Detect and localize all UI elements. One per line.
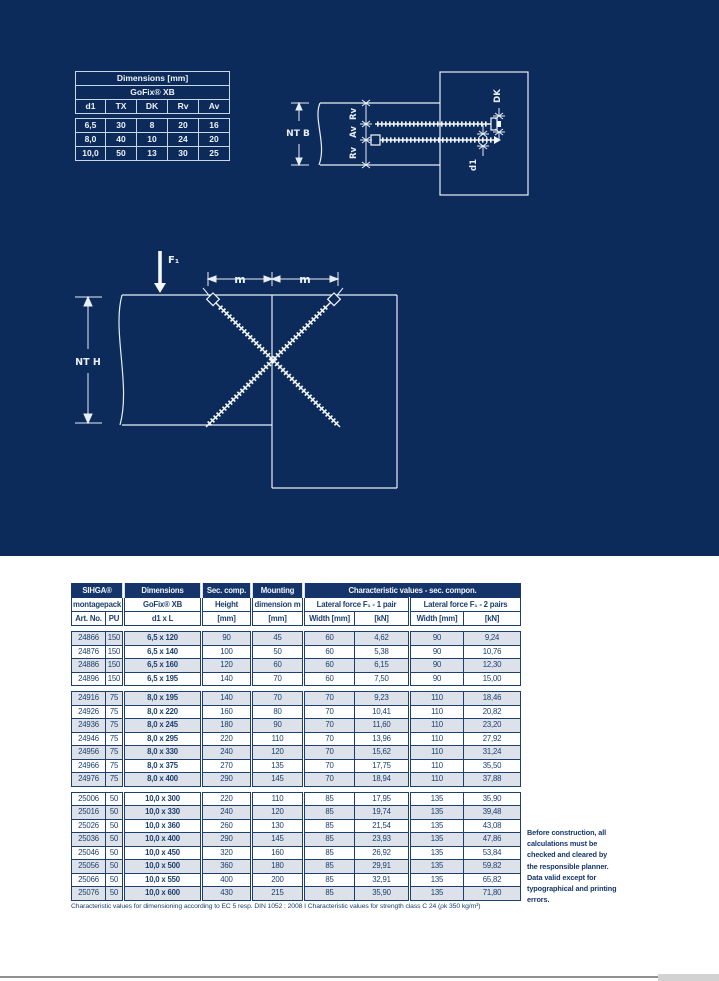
table-row: 248761506,5 x 14010050605,389010,76 [72,645,521,659]
cell: 53,84 [464,846,521,860]
table-row: 24926758,0 x 220160807010,4111020,82 [72,705,521,719]
table-row: 248961506,5 x 19514070607,509015,00 [72,672,521,686]
cell: 50 [106,887,124,901]
cell: 160 [252,846,304,860]
mini-col-header: TX [106,100,137,114]
cell: 400 [202,873,252,887]
table-row: 24936758,0 x 245180907011,6011023,20 [72,719,521,733]
mini-table-row: 6,53082016 [76,119,230,133]
cell: 150 [106,645,124,659]
table-row: 250165010,0 x 3302401208519,7413539,48 [72,806,521,820]
cell: 240 [202,746,252,760]
cell: 75 [106,759,124,773]
header-height: Height [202,598,252,612]
header-sec-comp: Sec. comp. [202,584,252,598]
cell: 90 [410,645,464,659]
mini-cell: 24 [168,133,199,147]
m-right-label: m [299,273,310,286]
header-kn-1pair: [kN] [355,612,410,626]
f1-arrow [154,251,166,293]
cell: 60 [304,672,355,686]
cell: 7,50 [355,672,410,686]
cell: 70 [304,732,355,746]
rv-top-label: Rv [349,108,359,121]
cell: 25066 [72,873,106,887]
header-lateral-1pair: Lateral force F₁ - 1 pair [304,598,410,612]
cell: 150 [106,659,124,673]
cell: 6,15 [355,659,410,673]
mini-table-subtitle: GoFix® XB [76,86,230,100]
cell: 25026 [72,819,106,833]
mini-cell: 13 [137,147,168,161]
cell: 140 [202,692,252,706]
cell: 90 [410,672,464,686]
cell: 135 [410,806,464,820]
mini-col-header: DK [137,100,168,114]
cell: 35,90 [464,792,521,806]
cell: 50 [106,873,124,887]
table-row: 24976758,0 x 4002901457018,9411037,88 [72,773,521,787]
cell: 65,82 [464,873,521,887]
cell: 110 [410,773,464,787]
cell: 59,82 [464,860,521,874]
cell: 25006 [72,792,106,806]
cell: 50 [106,860,124,874]
cell: 100 [202,645,252,659]
screw-head [491,118,497,130]
mini-cell: 8,0 [76,133,106,147]
cell: 200 [252,873,304,887]
cell: 90 [252,719,304,733]
mini-cell: 20 [168,119,199,133]
cell: 85 [304,806,355,820]
cell: 85 [304,846,355,860]
cell: 24966 [72,759,106,773]
cell: 31,24 [464,746,521,760]
cell: 13,96 [355,732,410,746]
cell: 120 [252,746,304,760]
cell: 70 [304,746,355,760]
table-row: 248661506,5 x 1209045604,62909,24 [72,632,521,646]
cell: 37,88 [464,773,521,787]
cell: 90 [410,632,464,646]
cell: 75 [106,746,124,760]
screw-head [371,135,380,145]
cell: 80 [252,705,304,719]
cell: 215 [252,887,304,901]
cell: 85 [304,887,355,901]
cell: 26,92 [355,846,410,860]
mini-table-row: 10,050133025 [76,147,230,161]
cell: 240 [202,806,252,820]
cell: 180 [202,719,252,733]
cell: 120 [252,806,304,820]
cell: 110 [410,692,464,706]
cell: 43,08 [464,819,521,833]
cell: 270 [202,759,252,773]
mini-cell: 6,5 [76,119,106,133]
cell: 35,50 [464,759,521,773]
mini-col-header: Av [199,100,230,114]
cell: 75 [106,773,124,787]
cell: 6,5 x 160 [124,659,202,673]
cell: 6,5 x 120 [124,632,202,646]
cell: 10,0 x 400 [124,833,202,847]
main-table-body: 248661506,5 x 1209045604,62909,242487615… [72,626,521,901]
table-row: 24946758,0 x 2952201107013,9611027,92 [72,732,521,746]
cell: 24956 [72,746,106,760]
cell: 145 [252,833,304,847]
cell: 85 [304,819,355,833]
cell: 85 [304,792,355,806]
mini-cell: 10 [137,133,168,147]
cell: 75 [106,692,124,706]
cell: 260 [202,819,252,833]
cell: 110 [252,792,304,806]
cell: 8,0 x 400 [124,773,202,787]
cell: 150 [106,632,124,646]
mini-table-columns: d1TXDKRvAv [76,100,230,114]
header-d1xl: d1 x L [124,612,202,626]
screw-tip [494,136,501,144]
header-montagepack: montagepack [72,598,124,612]
cell: 60 [304,632,355,646]
header-dimensions: Dimensions [124,584,202,598]
header-char-values: Characteristic values - sec. compon. [304,584,521,598]
cell: 10,0 x 360 [124,819,202,833]
cell: 24976 [72,773,106,787]
cell: 24886 [72,659,106,673]
header-width-2pairs: Width [mm] [410,612,464,626]
table-row: 250765010,0 x 6004302158535,9013571,80 [72,887,521,901]
cell: 110 [410,719,464,733]
f1-label: F₁ [168,255,179,266]
cell: 220 [202,732,252,746]
cell: 71,80 [464,887,521,901]
cell: 110 [252,732,304,746]
cell: 11,60 [355,719,410,733]
cell: 135 [410,887,464,901]
cell: 135 [410,873,464,887]
cell: 20,82 [464,705,521,719]
cell: 10,41 [355,705,410,719]
cell: 24926 [72,705,106,719]
cell: 50 [106,792,124,806]
cell: 24866 [72,632,106,646]
cell: 25046 [72,846,106,860]
mini-col-header: d1 [76,100,106,114]
cell: 8,0 x 295 [124,732,202,746]
cell: 8,0 x 330 [124,746,202,760]
cell: 50 [106,833,124,847]
mini-cell: 20 [199,133,230,147]
cell: 50 [106,806,124,820]
cell: 320 [202,846,252,860]
table-row: 250565010,0 x 5003601808529,9113559,82 [72,860,521,874]
beam-break-line [318,103,322,165]
cell: 160 [202,705,252,719]
cell: 25056 [72,860,106,874]
cell: 85 [304,860,355,874]
cell: 50 [252,645,304,659]
cell: 50 [106,846,124,860]
mini-cell: 25 [199,147,230,161]
cell: 12,30 [464,659,521,673]
cell: 50 [106,819,124,833]
header-mounting: Mounting [252,584,304,598]
table-row: 24916758,0 x 19514070709,2311018,46 [72,692,521,706]
page-bottom-border-edge [658,974,719,981]
cell: 39,48 [464,806,521,820]
cell: 17,75 [355,759,410,773]
header-width-1pair: Width [mm] [304,612,355,626]
nth-label: NT H [75,357,101,368]
cell: 135 [410,846,464,860]
cell: 145 [252,773,304,787]
mini-cell: 16 [199,119,230,133]
load-diagram: F₁ m m [62,243,442,495]
cell: 85 [304,833,355,847]
cell: 70 [252,672,304,686]
cell: 135 [410,833,464,847]
av-label: Av [349,126,359,138]
cell: 10,0 x 300 [124,792,202,806]
dimensions-mini-table: Dimensions [mm] GoFix® XB d1TXDKRvAv 6,5… [75,71,230,161]
cell: 110 [410,759,464,773]
cell: 35,90 [355,887,410,901]
cell: 360 [202,860,252,874]
cell: 4,62 [355,632,410,646]
cell: 15,00 [464,672,521,686]
cell: 10,0 x 550 [124,873,202,887]
cell: 10,0 x 500 [124,860,202,874]
cell: 25016 [72,806,106,820]
cell: 110 [410,705,464,719]
cell: 10,0 x 330 [124,806,202,820]
cell: 8,0 x 245 [124,719,202,733]
cell: 60 [252,659,304,673]
cell: 75 [106,705,124,719]
beam-break-line [119,295,124,425]
table-row: 24966758,0 x 3752701357017,7511035,50 [72,759,521,773]
cell: 60 [304,645,355,659]
cell: 85 [304,873,355,887]
cell: 70 [304,759,355,773]
cell: 19,74 [355,806,410,820]
cell: 29,91 [355,860,410,874]
cell: 220 [202,792,252,806]
m-left-label: m [234,273,245,286]
cell: 9,24 [464,632,521,646]
header-pu: PU [106,612,124,626]
cell: 25036 [72,833,106,847]
diagram-section: Dimensions [mm] GoFix® XB d1TXDKRvAv 6,5… [0,0,719,556]
mini-cell: 30 [168,147,199,161]
cell: 17,95 [355,792,410,806]
screw-drive-nub [497,121,501,127]
cell: 90 [410,659,464,673]
cell: 24936 [72,719,106,733]
cell: 6,5 x 140 [124,645,202,659]
cell: 60 [304,659,355,673]
cell: 140 [202,672,252,686]
cell: 110 [410,732,464,746]
cell: 24916 [72,692,106,706]
table-row: 250065010,0 x 3002201108517,9513535,90 [72,792,521,806]
d1-label: d1 [469,159,479,171]
dk-label: DK [493,89,503,103]
mini-cell: 50 [106,147,137,161]
header-kn-2pairs: [kN] [464,612,521,626]
mini-cell: 10,0 [76,147,106,161]
catalog-page: Dimensions [mm] GoFix® XB d1TXDKRvAv 6,5… [0,0,719,981]
cell: 25076 [72,887,106,901]
cell: 180 [252,860,304,874]
cell: 24896 [72,672,106,686]
cell: 8,0 x 375 [124,759,202,773]
cell: 8,0 x 195 [124,692,202,706]
cell: 70 [252,692,304,706]
cell: 27,92 [464,732,521,746]
table-row: 250665010,0 x 5504002008532,9113565,82 [72,873,521,887]
cell: 135 [410,860,464,874]
cell: 9,23 [355,692,410,706]
table-row: 24956758,0 x 3302401207015,6211031,24 [72,746,521,760]
cell: 10,76 [464,645,521,659]
cell: 70 [304,773,355,787]
cell: 430 [202,887,252,901]
cell: 135 [252,759,304,773]
cell: 110 [410,746,464,760]
cell: 70 [304,692,355,706]
rv-bottom-label: Rv [349,147,359,160]
mini-col-header: Rv [168,100,199,114]
header-lateral-2pairs: Lateral force F₁ - 2 pairs [410,598,521,612]
cell: 75 [106,719,124,733]
cell: 90 [202,632,252,646]
page-bottom-border [0,976,658,978]
cell: 45 [252,632,304,646]
cell: 70 [304,705,355,719]
cell: 10,0 x 450 [124,846,202,860]
cell: 70 [304,719,355,733]
mini-cell: 40 [106,133,137,147]
header-gofix: GoFix® XB [124,598,202,612]
cell: 23,20 [464,719,521,733]
upper-screw [375,118,501,130]
mini-cell: 8 [137,119,168,133]
mini-cell: 30 [106,119,137,133]
cell: 75 [106,732,124,746]
cell: 24946 [72,732,106,746]
table-row: 250265010,0 x 3602601308521,5413543,08 [72,819,521,833]
cell: 18,94 [355,773,410,787]
rv-av-dimension [360,100,372,168]
cell: 47,86 [464,833,521,847]
cell: 10,0 x 600 [124,887,202,901]
cell: 23,93 [355,833,410,847]
cell: 150 [106,672,124,686]
header-mm-height: [mm] [202,612,252,626]
cell: 6,5 x 195 [124,672,202,686]
cell: 21,54 [355,819,410,833]
table-footnote: Characteristic values for dimensioning a… [71,903,531,910]
cell: 5,38 [355,645,410,659]
lower-screw [371,135,501,145]
cell: 18,46 [464,692,521,706]
table-row: 250465010,0 x 4503201608526,9213553,84 [72,846,521,860]
cell: 120 [202,659,252,673]
disclaimer-note: Before construction, all calculations mu… [527,827,645,905]
cell: 15,62 [355,746,410,760]
screw-fit-diagram: NT B [283,62,533,202]
header-sihga: SIHGA® [72,584,124,598]
mini-table-body: 6,530820168,04010242010,050133025 [76,119,230,161]
header-art-no: Art. No. [72,612,106,626]
cell: 135 [410,792,464,806]
cell: 290 [202,773,252,787]
ntb-label: NT B [286,129,310,139]
product-table: SIHGA® Dimensions Sec. comp. Mounting Ch… [71,583,521,901]
mini-table-row: 8,040102420 [76,133,230,147]
table-row: 250365010,0 x 4002901458523,9313547,86 [72,833,521,847]
cell: 130 [252,819,304,833]
header-dimension-m: dimension m [252,598,304,612]
cell: 135 [410,819,464,833]
cell: 290 [202,833,252,847]
mini-table-title: Dimensions [mm] [76,72,230,86]
cell: 24876 [72,645,106,659]
cell: 8,0 x 220 [124,705,202,719]
cell: 32,91 [355,873,410,887]
header-mm-mounting: [mm] [252,612,304,626]
table-row: 248861506,5 x 16012060606,159012,30 [72,659,521,673]
